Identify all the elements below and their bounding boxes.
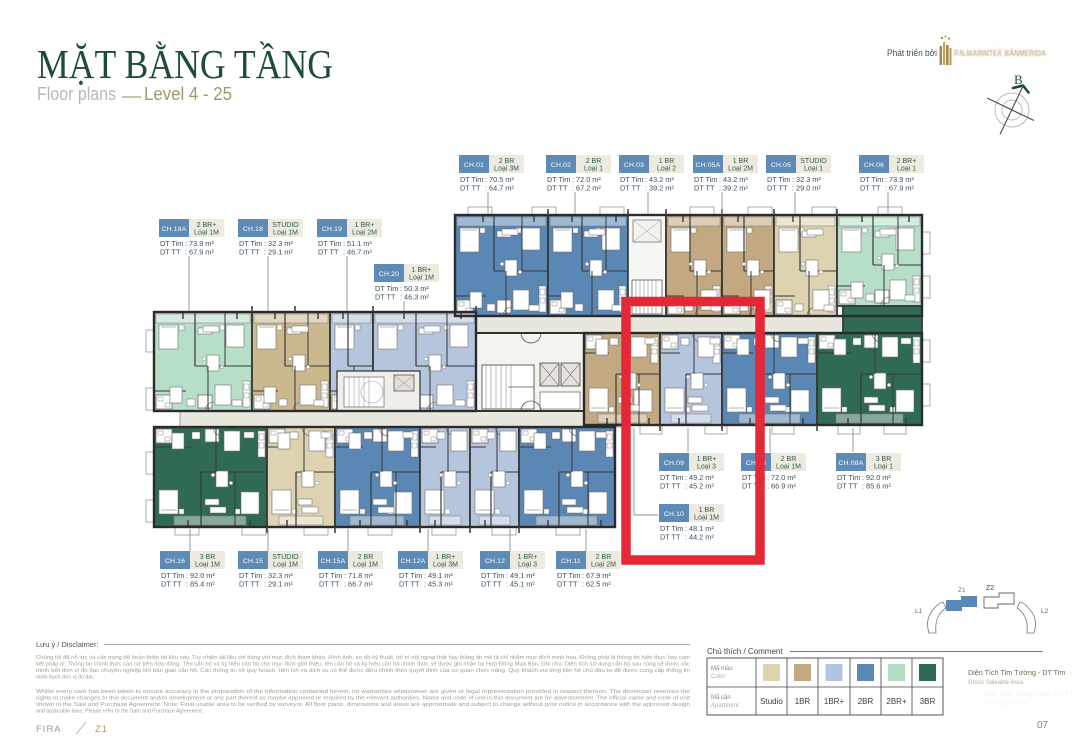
svg-text:1 BR+: 1 BR+ [436, 554, 456, 561]
svg-text:: 29.0 m²: : 29.0 m² [792, 184, 821, 193]
svg-text:Chú thích / Comment: Chú thích / Comment [707, 647, 783, 656]
svg-text:DT TT: DT TT [239, 580, 260, 589]
svg-text:rights to make changes to this: rights to make changes to this document … [36, 696, 691, 702]
svg-text:DT TT: DT TT [694, 184, 715, 193]
svg-text:kết pháp lý. Thông tin chính t: kết pháp lý. Thông tin chính thức căn cứ… [36, 661, 690, 668]
svg-text:Loại 2M: Loại 2M [352, 230, 377, 237]
svg-text:CH.19: CH.19 [322, 226, 342, 233]
svg-text:Loại 1: Loại 1 [584, 166, 603, 173]
svg-text:: 66.9 m²: : 66.9 m² [767, 482, 796, 491]
svg-text:Loại 2M: Loại 2M [591, 562, 616, 569]
svg-text:Chúng tôi đã nỗ lực và cẩn trọ: Chúng tôi đã nỗ lực và cẩn trọng để hoàn… [36, 654, 691, 661]
svg-text:1 BR+: 1 BR+ [412, 267, 432, 274]
svg-text:DT TT: DT TT [318, 248, 339, 257]
svg-text:DT TT: DT TT [375, 293, 396, 302]
svg-text:2BR+: 2BR+ [886, 697, 907, 706]
svg-text:Floor plans: Floor plans [37, 84, 116, 104]
svg-text:DT TT: DT TT [399, 580, 420, 589]
svg-text:: 45.1 m²: : 45.1 m² [506, 580, 535, 589]
svg-text:1 BR: 1 BR [659, 158, 675, 165]
svg-text:CH.06: CH.06 [864, 162, 884, 169]
svg-text:DT TT: DT TT [161, 580, 182, 589]
svg-text:CH.10: CH.10 [664, 511, 684, 518]
svg-text:DT TT: DT TT [837, 482, 858, 491]
svg-text:CH.15: CH.15 [243, 558, 263, 565]
svg-text:: 85.4 m²: : 85.4 m² [186, 580, 215, 589]
svg-text:07: 07 [1037, 720, 1049, 731]
svg-text:DT TT: DT TT [557, 580, 578, 589]
svg-text:: 39.2 m²: : 39.2 m² [645, 184, 674, 193]
svg-text:L1: L1 [915, 608, 923, 615]
svg-text:3 BR: 3 BR [200, 554, 216, 561]
svg-text:Apartment: Apartment [711, 703, 739, 709]
svg-text:and applicable laws. Please re: and applicable laws. Please refer to the… [36, 709, 203, 715]
svg-text:: 44.2 m²: : 44.2 m² [685, 533, 714, 542]
svg-text:2BR: 2BR [858, 697, 874, 706]
svg-text:Color: Color [711, 674, 725, 680]
svg-text:Loại 1M: Loại 1M [409, 275, 434, 282]
svg-text:CH.15A: CH.15A [321, 558, 346, 565]
svg-text:CH.18A: CH.18A [162, 226, 187, 233]
svg-text:1 BR: 1 BR [699, 507, 715, 514]
svg-text:: 29.1 m²: : 29.1 m² [264, 248, 293, 257]
svg-text:CH.12: CH.12 [485, 558, 505, 565]
svg-text:Loại 3: Loại 3 [697, 464, 716, 471]
svg-text:Z2: Z2 [986, 585, 994, 592]
svg-text:: 64.7 m²: : 64.7 m² [485, 184, 514, 193]
svg-text:CH.12A: CH.12A [401, 558, 426, 565]
svg-text:Loại 1: Loại 1 [897, 166, 916, 173]
svg-text:CH.05A: CH.05A [696, 162, 721, 169]
svg-text:Gross Saleable Area: Gross Saleable Area [968, 680, 1024, 686]
svg-text:1 BR+: 1 BR+ [697, 456, 717, 463]
svg-text:: 85.6 m²: : 85.6 m² [862, 482, 891, 491]
svg-text:DT TT: DT TT [460, 184, 481, 193]
svg-text:Net Usable Area: Net Usable Area [985, 701, 1029, 707]
svg-text:2 BR: 2 BR [596, 554, 612, 561]
svg-text:CH.01: CH.01 [464, 162, 484, 169]
svg-text:DT TT: DT TT [481, 580, 502, 589]
svg-text:Loại 1M: Loại 1M [195, 562, 220, 569]
svg-text:Loại 1M: Loại 1M [273, 562, 298, 569]
svg-text:STUDIO: STUDIO [800, 158, 827, 165]
svg-text:FIRA: FIRA [36, 724, 62, 735]
svg-text:DT TT: DT TT [660, 482, 681, 491]
svg-text:DT TT: DT TT [860, 184, 881, 193]
svg-text:Loại 1M: Loại 1M [776, 464, 801, 471]
svg-text:DT TT: DT TT [319, 580, 340, 589]
svg-text:STUDIO: STUDIO [272, 222, 299, 229]
svg-text:Diện Tích Tim Tường - DT Tim: Diện Tích Tim Tường - DT Tim [968, 668, 1065, 677]
svg-text:Loại 3M: Loại 3M [494, 166, 519, 173]
svg-text:Z1: Z1 [958, 587, 966, 594]
svg-text:: 62.5 m²: : 62.5 m² [582, 580, 611, 589]
svg-text:: 46.3 m²: : 46.3 m² [400, 293, 429, 302]
svg-text:Mã căn: Mã căn [711, 695, 731, 701]
svg-text:Phát triển bởi: Phát triển bởi [887, 48, 937, 59]
svg-text:shown in the Sale and Purchase: shown in the Sale and Purchase Agreement… [36, 702, 690, 708]
svg-text:DT TT: DT TT [767, 184, 788, 193]
svg-text:Lưu ý / Disclaimer:: Lưu ý / Disclaimer: [36, 640, 99, 649]
svg-text:CH.20: CH.20 [379, 271, 399, 278]
svg-text:CH.09: CH.09 [664, 460, 684, 467]
svg-text:DT TT: DT TT [620, 184, 641, 193]
svg-text:CH.05: CH.05 [771, 162, 791, 169]
svg-text:Loại 1: Loại 1 [874, 464, 893, 471]
svg-text:: 45.3 m²: : 45.3 m² [424, 580, 453, 589]
svg-text:: 67.9 m²: : 67.9 m² [885, 184, 914, 193]
svg-text:: 67.2 m²: : 67.2 m² [572, 184, 601, 193]
svg-text:: 66.7 m²: : 66.7 m² [344, 580, 373, 589]
svg-text:Loại 1M: Loại 1M [273, 230, 298, 237]
svg-text:CH.03: CH.03 [624, 162, 644, 169]
svg-text:STUDIO: STUDIO [272, 554, 299, 561]
svg-text:1BR+: 1BR+ [824, 697, 845, 706]
svg-text:CH.18: CH.18 [243, 226, 263, 233]
svg-text:DT TT: DT TT [160, 248, 181, 257]
svg-text:: 39.2 m²: : 39.2 m² [719, 184, 748, 193]
svg-text:2 BR: 2 BR [586, 158, 602, 165]
svg-text:Loại 3: Loại 3 [518, 562, 537, 569]
svg-text:2 BR: 2 BR [499, 158, 515, 165]
svg-text:Loại 1M: Loại 1M [694, 515, 719, 522]
svg-text:Mã màu: Mã màu [711, 666, 733, 672]
svg-text:3BR: 3BR [920, 697, 936, 706]
svg-text:Z1: Z1 [95, 724, 108, 735]
svg-text:2 BR+: 2 BR+ [197, 222, 217, 229]
svg-text:: 46.7 m²: : 46.7 m² [343, 248, 372, 257]
svg-text:minh bởi đơn vị đo đạc chuyên: minh bởi đơn vị đo đạc chuyên nghiệp khi… [36, 667, 690, 674]
svg-text:3 BR: 3 BR [876, 456, 892, 463]
svg-text:CH.02: CH.02 [551, 162, 571, 169]
svg-text:Loại 2: Loại 2 [657, 166, 676, 173]
svg-text:: 29.1 m²: : 29.1 m² [264, 580, 293, 589]
svg-text:DT TT: DT TT [660, 533, 681, 542]
svg-text:Diện Tích Thông Thủy - DT TT: Diện Tích Thông Thủy - DT TT [985, 690, 1073, 698]
svg-text:CH.08A: CH.08A [839, 460, 864, 467]
svg-text:Whilst every care has been tak: Whilst every care has been taken to ensu… [36, 689, 690, 695]
svg-text:Loại 3M: Loại 3M [433, 562, 458, 569]
svg-text:: 67.9 m²: : 67.9 m² [185, 248, 214, 257]
svg-text:1 BR: 1 BR [733, 158, 749, 165]
svg-text:L2: L2 [1041, 608, 1049, 615]
svg-text:Level 4 - 25: Level 4 - 25 [144, 84, 232, 104]
svg-text:CH.16: CH.16 [165, 558, 185, 565]
svg-text:CH.11: CH.11 [561, 558, 581, 565]
svg-text:1 BR+: 1 BR+ [355, 222, 375, 229]
svg-text:: 45.2 m²: : 45.2 m² [685, 482, 714, 491]
svg-text:P.N.MARINTEK̉ BÀNMERIDA: P.N.MARINTEK̉ BÀNMERIDA [954, 47, 1046, 58]
svg-text:Loại 1M: Loại 1M [194, 230, 219, 237]
svg-text:Loại 2M: Loại 2M [728, 166, 753, 173]
svg-text:Loại 1: Loại 1 [804, 166, 823, 173]
svg-text:Studio: Studio [760, 697, 783, 706]
svg-text:2 BR: 2 BR [358, 554, 374, 561]
svg-text:1 BR+: 1 BR+ [518, 554, 538, 561]
svg-text:2 BR+: 2 BR+ [897, 158, 917, 165]
svg-text:DT TT: DT TT [547, 184, 568, 193]
svg-text:1BR: 1BR [795, 697, 811, 706]
svg-text:2 BR: 2 BR [781, 456, 797, 463]
svg-text:minh bạch đơn vị đo đạc.: minh bạch đơn vị đo đạc. [36, 675, 95, 681]
svg-text:MẶT BẰNG TẦNG: MẶT BẰNG TẦNG [37, 41, 333, 87]
svg-text:Loại 1M: Loại 1M [353, 562, 378, 569]
svg-text:DT TT: DT TT [239, 248, 260, 257]
